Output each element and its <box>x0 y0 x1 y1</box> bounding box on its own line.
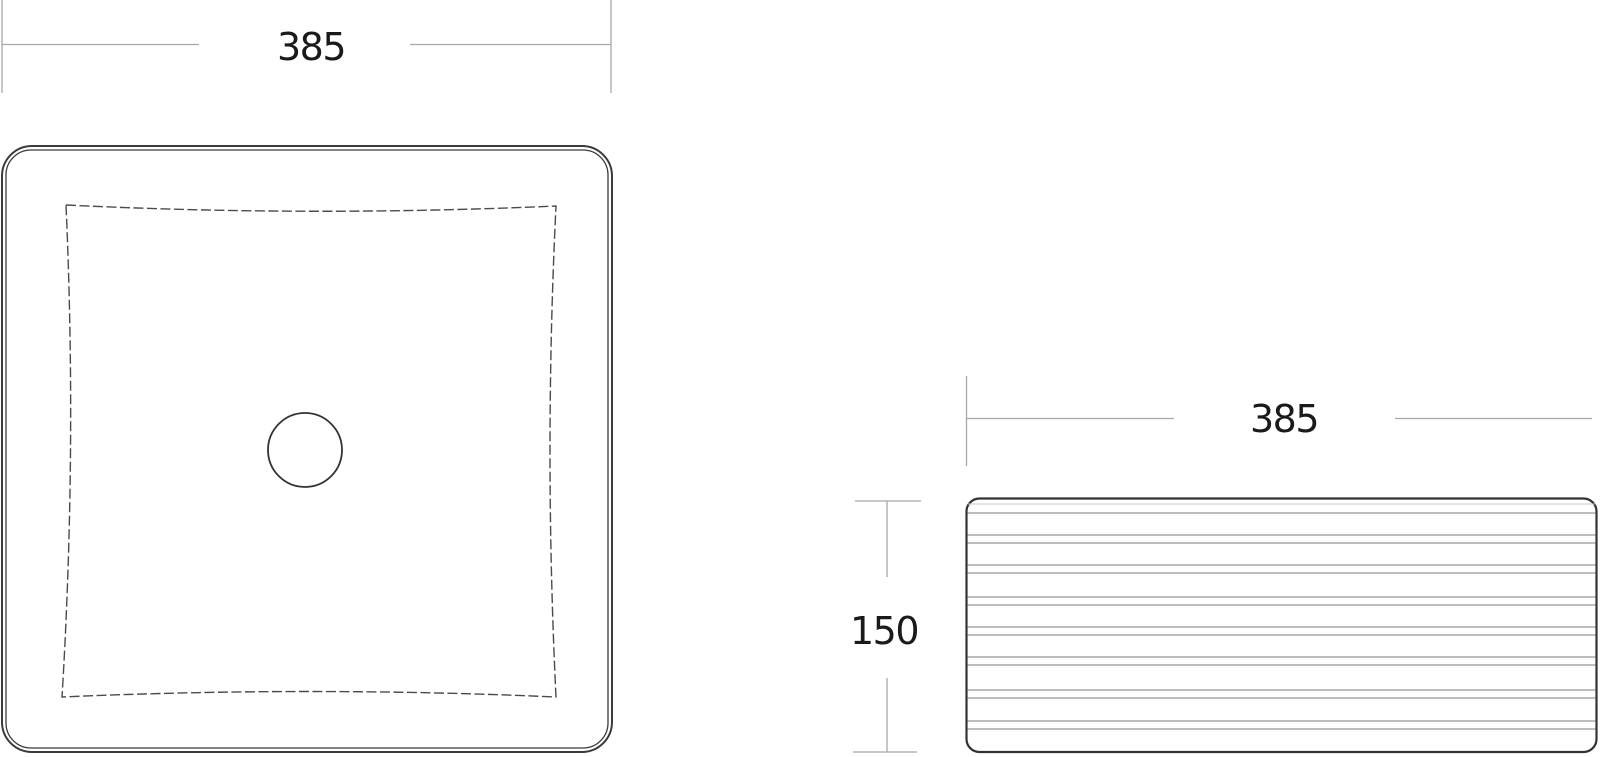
top-view-width-label: 385 <box>277 25 345 69</box>
top-view-outer-rim <box>2 146 612 752</box>
side-view-body <box>967 499 1597 753</box>
side-view-height-label: 150 <box>850 609 918 653</box>
side-view-flute-lines <box>968 504 1596 729</box>
top-view-bowl-outline <box>62 205 556 697</box>
top-view-width-dimension: 385 <box>2 0 611 93</box>
technical-drawing-canvas: 385 <box>0 0 1600 757</box>
basin-side-view <box>967 499 1597 753</box>
top-view-inner-rim <box>6 150 608 748</box>
basin-dimension-drawing: 385 <box>0 0 1600 757</box>
side-view-width-label: 385 <box>1250 397 1318 441</box>
drain-hole-icon <box>268 413 342 487</box>
side-view-height-dimension: 150 <box>850 501 921 752</box>
side-view-width-dimension: 385 <box>967 376 1593 466</box>
basin-top-view <box>2 146 612 752</box>
